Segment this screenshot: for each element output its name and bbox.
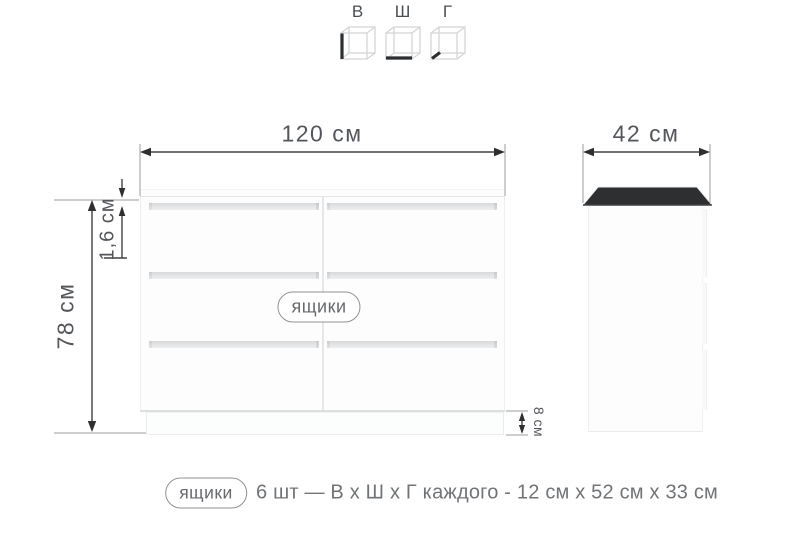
side-view-top-board [583,187,712,205]
side-view-drawer-edge [702,350,707,410]
legend-label-depth: Г [425,2,471,22]
drawer-groove [327,341,497,348]
top-thickness-dimension: 1,6 см [97,197,120,260]
caption-text: 6 шт — В х Ш х Г каждого - 12 см х 52 см… [256,482,718,505]
side-view-drawer-edge [702,283,707,344]
plinth-height-dimension: 8 см [531,407,547,437]
legend-item-width: Ш [380,2,426,62]
legend-label-width: Ш [380,2,426,22]
front-width-dimension: 120 см [281,121,362,148]
legend-item-depth: Г [425,2,471,62]
drawer-groove [149,203,319,210]
depth-cube-icon [428,24,468,62]
side-view-drawer-edge [702,209,707,277]
drawers-badge: ящики [277,292,360,323]
front-height-dimension: 78 см [53,283,80,350]
drawer-groove [327,272,497,279]
caption-badge: ящики [165,478,247,509]
drawer-groove [149,272,319,279]
side-depth-dimension: 42 см [613,121,680,148]
side-view-body [588,205,703,432]
legend-label-height: В [335,2,381,22]
drawer-groove [149,341,319,348]
drawer-groove [327,203,497,210]
width-cube-icon [383,24,423,62]
product-dimension-diagram: В Ш Г [0,0,800,560]
height-cube-icon [338,24,378,62]
legend-item-height: В [335,2,381,62]
front-view-plinth [146,412,504,435]
front-view-top-board [140,189,505,197]
